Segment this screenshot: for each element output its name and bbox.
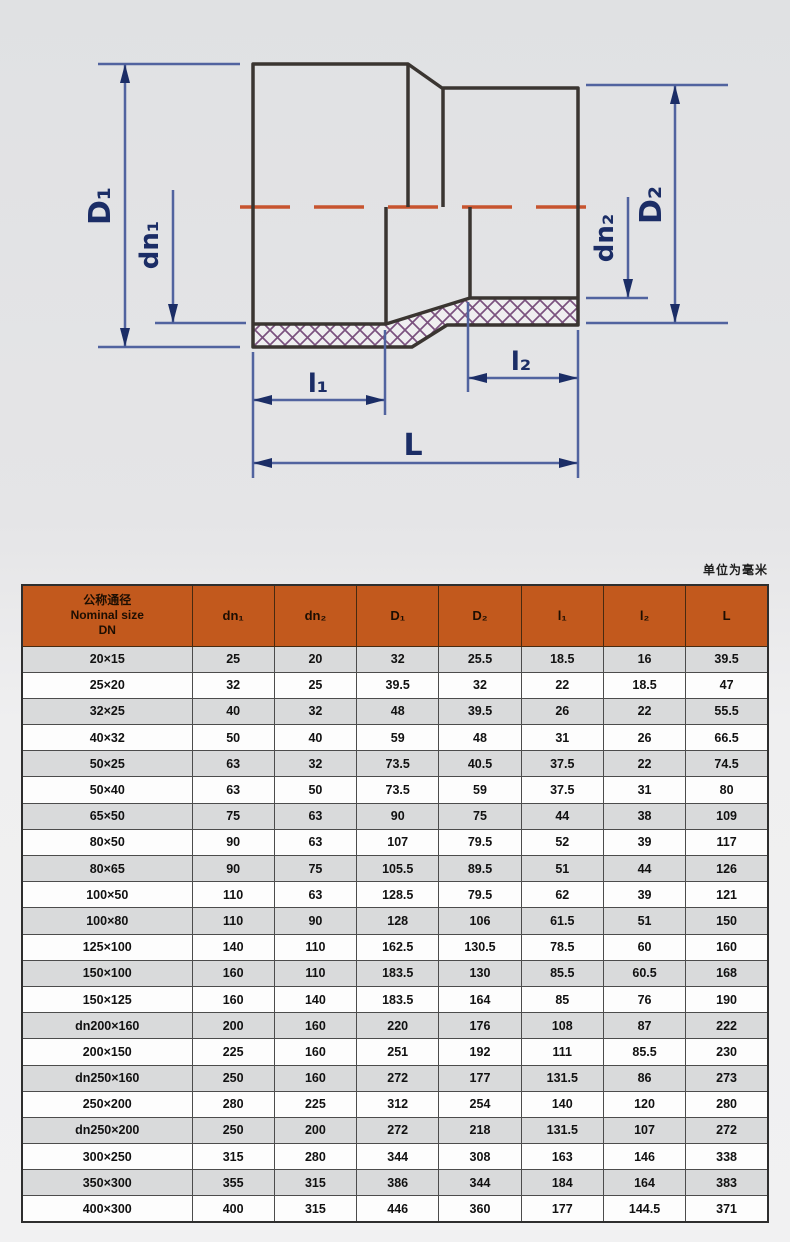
header-l1: l₁ [521,585,603,646]
cell: 76 [603,986,685,1012]
cell: 315 [274,1170,356,1196]
cell: 163 [521,1144,603,1170]
cell: 360 [439,1196,521,1222]
cell: 280 [274,1144,356,1170]
row-label: 80×50 [22,829,192,855]
row-label: 50×40 [22,777,192,803]
cell: 51 [521,856,603,882]
cell: 60 [603,934,685,960]
cell: 55.5 [686,698,768,724]
dim-label-dn1: dn₁ [135,221,165,270]
cell: 177 [439,1065,521,1091]
technical-drawing: D₁ dn₁ dn₂ D₂ l₁ l₂ L [0,0,790,555]
table-row: 25×20322539.5322218.547 [22,672,768,698]
cell: 50 [192,725,274,751]
cell: 184 [521,1170,603,1196]
cell: 39 [603,829,685,855]
cell: 39 [603,882,685,908]
cell: 32 [357,646,439,672]
cell: 74.5 [686,751,768,777]
cell: 25 [274,672,356,698]
cell: 87 [603,1013,685,1039]
cell: 109 [686,803,768,829]
table-row: 65×50756390754438109 [22,803,768,829]
table-row: dn250×160250160272177131.586273 [22,1065,768,1091]
cell: 25 [192,646,274,672]
header-dn2: dn₂ [274,585,356,646]
header-d1: D₁ [357,585,439,646]
cell: 90 [192,829,274,855]
row-label: 250×200 [22,1091,192,1117]
table-row: 200×15022516025119211185.5230 [22,1039,768,1065]
table-row: 50×40635073.55937.53180 [22,777,768,803]
cell: 183.5 [357,960,439,986]
row-label: 50×25 [22,751,192,777]
cell: 26 [521,698,603,724]
cell: 59 [439,777,521,803]
cell: 75 [274,856,356,882]
table-row: 250×200280225312254140120280 [22,1091,768,1117]
cell: 315 [274,1196,356,1222]
cell: 78.5 [521,934,603,960]
dimension-table: 公称通径 Nominal size DN dn₁ dn₂ D₁ D₂ l₁ l₂… [21,584,769,1223]
row-label: 300×250 [22,1144,192,1170]
cell: 48 [439,725,521,751]
dimension-lines [98,64,728,478]
cell: 140 [192,934,274,960]
cell: 446 [357,1196,439,1222]
header-l2: l₂ [603,585,685,646]
cell: 160 [192,960,274,986]
cell: 160 [192,986,274,1012]
table-row: 80×50906310779.55239117 [22,829,768,855]
cell: 22 [521,672,603,698]
cell: 86 [603,1065,685,1091]
cell: 40 [274,725,356,751]
cell: 220 [357,1013,439,1039]
cell: 31 [603,777,685,803]
row-label: 80×65 [22,856,192,882]
cell: 140 [274,986,356,1012]
row-label: 125×100 [22,934,192,960]
cell: 168 [686,960,768,986]
row-label: 25×20 [22,672,192,698]
cell: 371 [686,1196,768,1222]
cell: 44 [603,856,685,882]
dimension-table-wrap: 公称通径 Nominal size DN dn₁ dn₂ D₁ D₂ l₁ l₂… [21,584,769,1223]
cell: 128.5 [357,882,439,908]
table-row: 300×250315280344308163146338 [22,1144,768,1170]
cell: 250 [192,1117,274,1143]
cell: 272 [357,1117,439,1143]
table-row: 50×25633273.540.537.52274.5 [22,751,768,777]
cell: 110 [274,960,356,986]
cell: 39.5 [439,698,521,724]
cell: 32 [192,672,274,698]
cell: 32 [274,751,356,777]
cell: 85 [521,986,603,1012]
unit-note: 单位为毫米 [703,561,768,578]
cell: 73.5 [357,777,439,803]
table-row: dn200×16020016022017610887222 [22,1013,768,1039]
cell: 44 [521,803,603,829]
cell: 32 [439,672,521,698]
cell: 200 [192,1013,274,1039]
cell: 89.5 [439,856,521,882]
cell: 37.5 [521,777,603,803]
cell: 130.5 [439,934,521,960]
cell: 22 [603,751,685,777]
cell: 315 [192,1144,274,1170]
table-row: 350×300355315386344184164383 [22,1170,768,1196]
cell: 164 [603,1170,685,1196]
cell: 22 [603,698,685,724]
cell: 254 [439,1091,521,1117]
row-label: 40×32 [22,725,192,751]
cell: 146 [603,1144,685,1170]
cell: 40.5 [439,751,521,777]
cell: 280 [192,1091,274,1117]
cell: 131.5 [521,1065,603,1091]
row-label: 150×125 [22,986,192,1012]
table-row: 40×3250405948312666.5 [22,725,768,751]
cell: 85.5 [603,1039,685,1065]
reducer-section-drawing: D₁ dn₁ dn₂ D₂ l₁ l₂ L [0,0,790,555]
cell: 80 [686,777,768,803]
table-row: 125×100140110162.5130.578.560160 [22,934,768,960]
table-row: 100×5011063128.579.56239121 [22,882,768,908]
table-row: 32×2540324839.5262255.5 [22,698,768,724]
dim-label-l1: l₁ [308,369,328,399]
cell: 338 [686,1144,768,1170]
cell: 230 [686,1039,768,1065]
cell: 107 [603,1117,685,1143]
cell: 162.5 [357,934,439,960]
cell: 25.5 [439,646,521,672]
cell: 150 [686,908,768,934]
dim-label-l2: l₂ [511,347,531,377]
cell: 272 [686,1117,768,1143]
cell: 400 [192,1196,274,1222]
table-row: 80×659075105.589.55144126 [22,856,768,882]
cell: 38 [603,803,685,829]
cell: 312 [357,1091,439,1117]
cell: 192 [439,1039,521,1065]
cell: 110 [192,882,274,908]
cell: 90 [192,856,274,882]
dim-label-d2: D₂ [634,186,669,224]
cell: 90 [357,803,439,829]
cell: 62 [521,882,603,908]
cell: 51 [603,908,685,934]
row-label: 350×300 [22,1170,192,1196]
cell: 121 [686,882,768,908]
cell: 200 [274,1117,356,1143]
cell: 160 [274,1039,356,1065]
cell: 308 [439,1144,521,1170]
cell: 225 [274,1091,356,1117]
cell: 250 [192,1065,274,1091]
cell: 344 [439,1170,521,1196]
cell: 383 [686,1170,768,1196]
cell: 105.5 [357,856,439,882]
cell: 176 [439,1013,521,1039]
row-label: 150×100 [22,960,192,986]
cell: 63 [192,751,274,777]
row-label: 100×80 [22,908,192,934]
cell: 106 [439,908,521,934]
cell: 75 [192,803,274,829]
cell: 63 [192,777,274,803]
cell: 160 [274,1013,356,1039]
cell: 183.5 [357,986,439,1012]
header-d2: D₂ [439,585,521,646]
cell: 18.5 [603,672,685,698]
cell: 16 [603,646,685,672]
cell: 131.5 [521,1117,603,1143]
cell: 31 [521,725,603,751]
row-label: 20×15 [22,646,192,672]
cell: 79.5 [439,829,521,855]
table-header-row: 公称通径 Nominal size DN dn₁ dn₂ D₁ D₂ l₁ l₂… [22,585,768,646]
row-label: dn250×200 [22,1117,192,1143]
row-label: 65×50 [22,803,192,829]
row-label: 400×300 [22,1196,192,1222]
cell: 272 [357,1065,439,1091]
cell: 144.5 [603,1196,685,1222]
cell: 63 [274,803,356,829]
header-nominal-size: 公称通径 Nominal size DN [22,585,192,646]
dim-label-dn2: dn₂ [590,214,620,263]
cell: 39.5 [357,672,439,698]
cell: 128 [357,908,439,934]
cell: 60.5 [603,960,685,986]
cell: 32 [274,698,356,724]
cell: 130 [439,960,521,986]
cell: 160 [274,1065,356,1091]
cell: 47 [686,672,768,698]
cell: 190 [686,986,768,1012]
cell: 117 [686,829,768,855]
row-label: 200×150 [22,1039,192,1065]
cell: 20 [274,646,356,672]
table-row: dn250×200250200272218131.5107272 [22,1117,768,1143]
dim-label-d1: D₁ [83,187,118,225]
cell: 50 [274,777,356,803]
cell: 111 [521,1039,603,1065]
cell: 273 [686,1065,768,1091]
cell: 140 [521,1091,603,1117]
cell: 61.5 [521,908,603,934]
cell: 126 [686,856,768,882]
cell: 75 [439,803,521,829]
cell: 225 [192,1039,274,1065]
cell: 251 [357,1039,439,1065]
cell: 386 [357,1170,439,1196]
row-label: 32×25 [22,698,192,724]
cell: 85.5 [521,960,603,986]
cell: 37.5 [521,751,603,777]
table-row: 100×801109012810661.551150 [22,908,768,934]
cell: 120 [603,1091,685,1117]
table-row: 150×125160140183.51648576190 [22,986,768,1012]
cell: 280 [686,1091,768,1117]
table-row: 400×300400315446360177144.5371 [22,1196,768,1222]
cell: 18.5 [521,646,603,672]
cell: 63 [274,882,356,908]
cell: 90 [274,908,356,934]
cell: 107 [357,829,439,855]
cell: 48 [357,698,439,724]
cell: 40 [192,698,274,724]
cell: 63 [274,829,356,855]
cell: 79.5 [439,882,521,908]
cell: 59 [357,725,439,751]
cell: 222 [686,1013,768,1039]
cell: 110 [274,934,356,960]
row-label: 100×50 [22,882,192,908]
dimension-arrows [120,64,680,468]
cell: 177 [521,1196,603,1222]
cell: 66.5 [686,725,768,751]
cell: 110 [192,908,274,934]
cell: 344 [357,1144,439,1170]
header-L: L [686,585,768,646]
dim-label-L: L [403,428,422,463]
cell: 164 [439,986,521,1012]
table-row: 150×100160110183.513085.560.5168 [22,960,768,986]
cell: 355 [192,1170,274,1196]
table-row: 20×1525203225.518.51639.5 [22,646,768,672]
cell: 52 [521,829,603,855]
cell: 73.5 [357,751,439,777]
header-dn1: dn₁ [192,585,274,646]
cell: 160 [686,934,768,960]
cell: 39.5 [686,646,768,672]
cell: 218 [439,1117,521,1143]
cell: 108 [521,1013,603,1039]
row-label: dn250×160 [22,1065,192,1091]
row-label: dn200×160 [22,1013,192,1039]
cell: 26 [603,725,685,751]
